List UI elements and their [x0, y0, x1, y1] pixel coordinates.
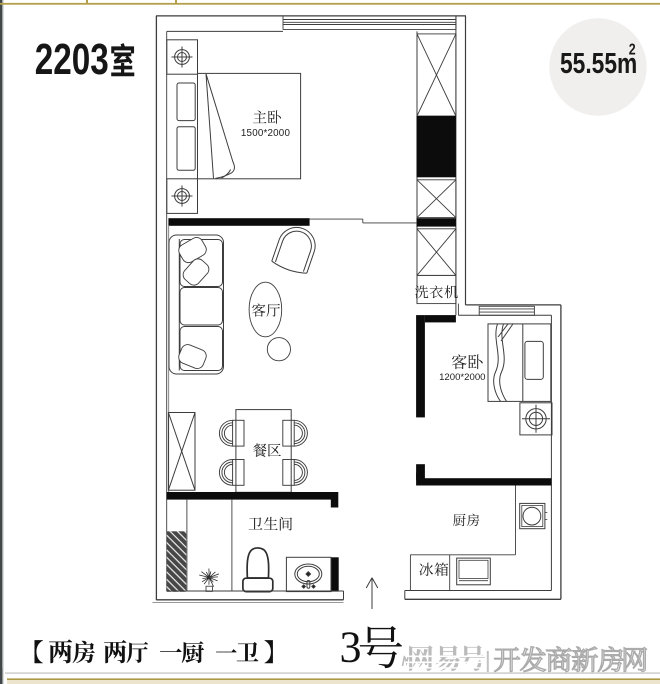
svg-text:1500*2000: 1500*2000 [241, 128, 291, 139]
svg-text:1200*2000: 1200*2000 [439, 372, 485, 383]
svg-text:3: 3 [340, 623, 362, 672]
svg-text:2203: 2203 [35, 36, 109, 84]
svg-text:2: 2 [629, 40, 636, 58]
svg-text:55.55m: 55.55m [560, 49, 637, 80]
